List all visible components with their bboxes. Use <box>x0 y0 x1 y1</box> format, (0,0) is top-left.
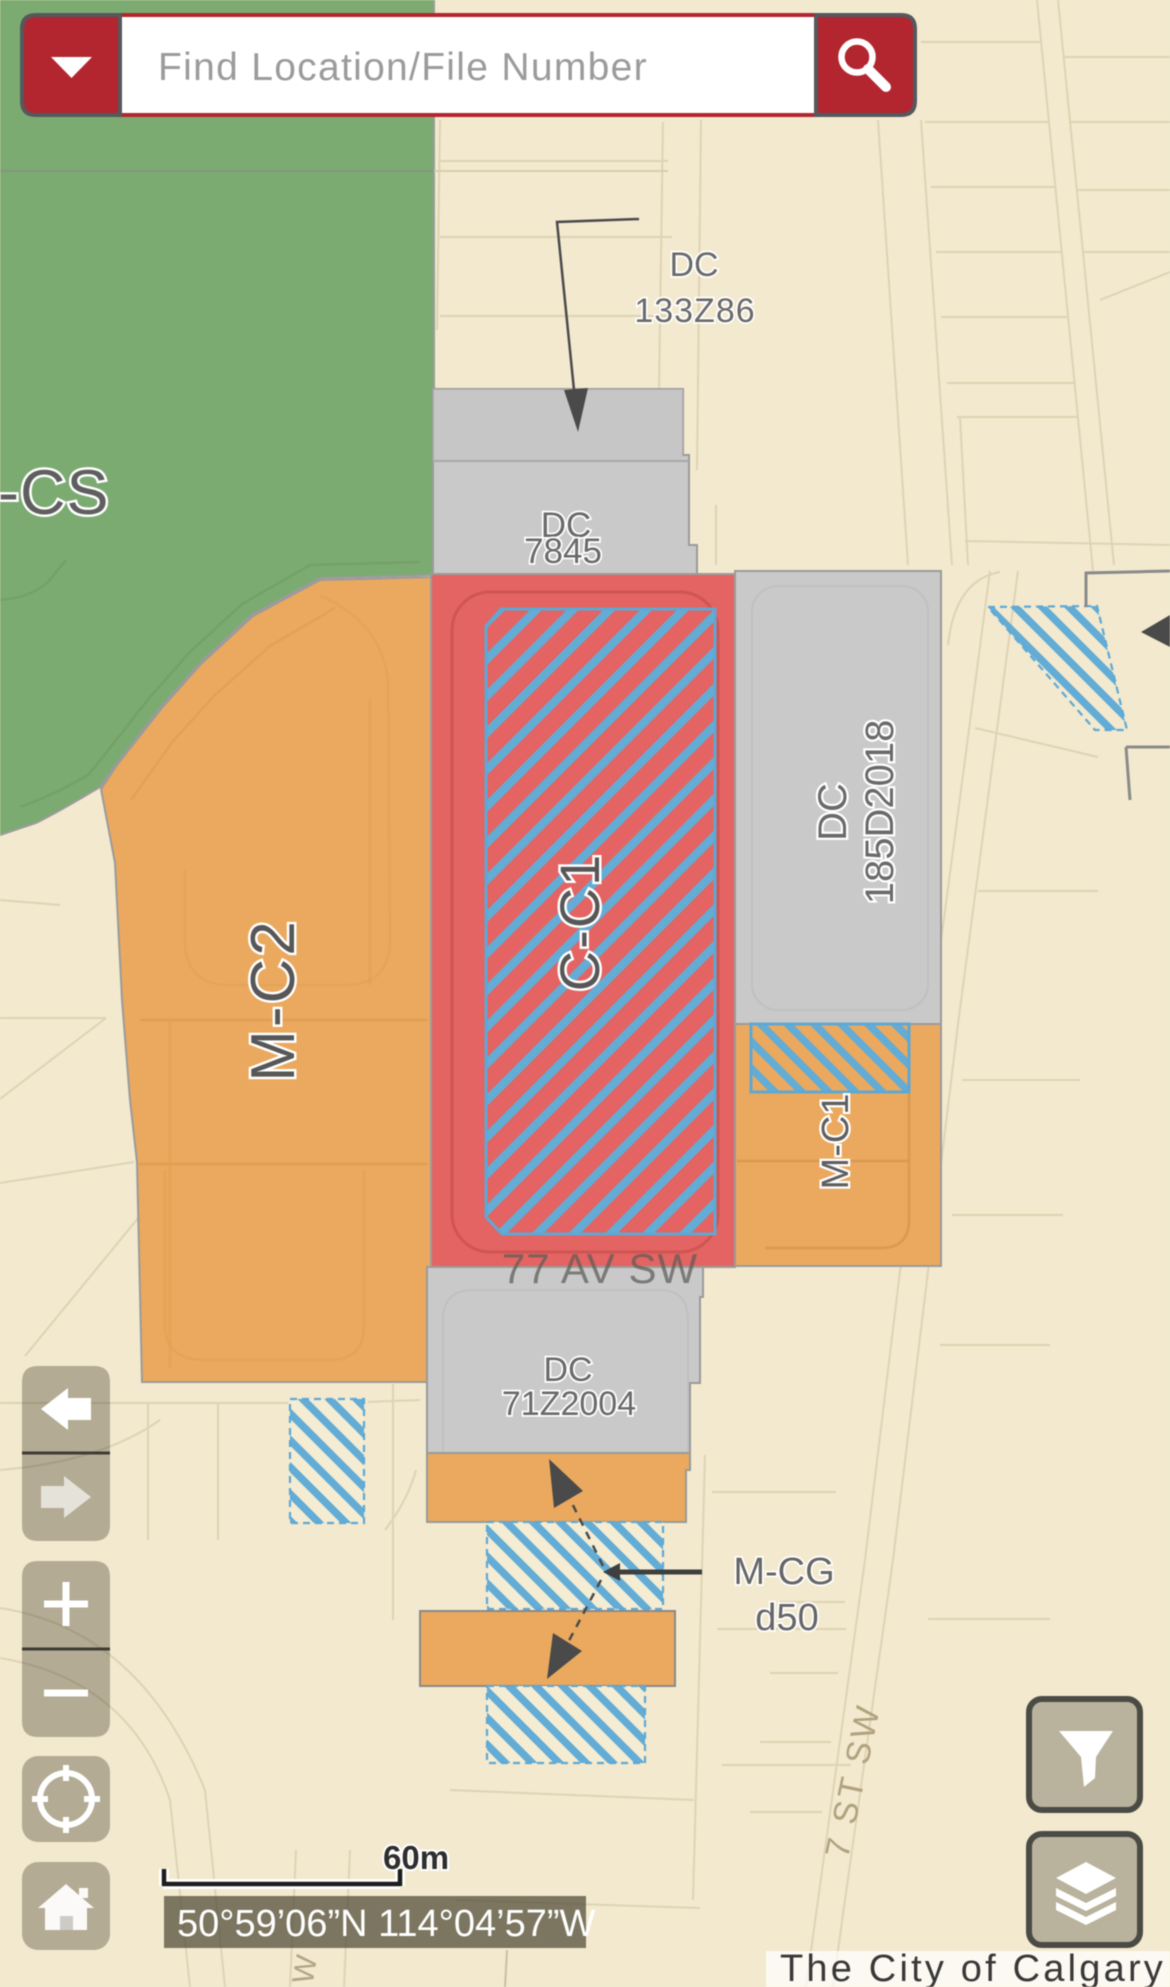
svg-text:Find Location/File Number: Find Location/File Number <box>158 46 648 89</box>
svg-text:C-C1: C-C1 <box>548 853 611 992</box>
svg-text:M-CG: M-CG <box>733 1551 834 1593</box>
svg-text:7845: 7845 <box>524 532 602 571</box>
svg-text:M-C1: M-C1 <box>815 1093 857 1190</box>
svg-text:DC: DC <box>811 783 855 841</box>
svg-text:DC: DC <box>669 246 718 284</box>
svg-text:DC: DC <box>543 1351 592 1389</box>
svg-text:133Z86: 133Z86 <box>634 292 755 330</box>
svg-text:d50: d50 <box>755 1597 818 1639</box>
svg-text:M-C2: M-C2 <box>239 918 308 1082</box>
svg-text:-CS: -CS <box>0 458 110 528</box>
svg-text:185D2018: 185D2018 <box>858 720 902 905</box>
svg-text:50°59’06”N 114°04’57”W: 50°59’06”N 114°04’57”W <box>177 1903 596 1945</box>
svg-text:71Z2004: 71Z2004 <box>502 1385 636 1423</box>
svg-text:60m: 60m <box>383 1839 449 1876</box>
svg-text:77 AV SW: 77 AV SW <box>502 1245 698 1292</box>
svg-text:The City of Calgary: The City of Calgary <box>780 1948 1166 1987</box>
